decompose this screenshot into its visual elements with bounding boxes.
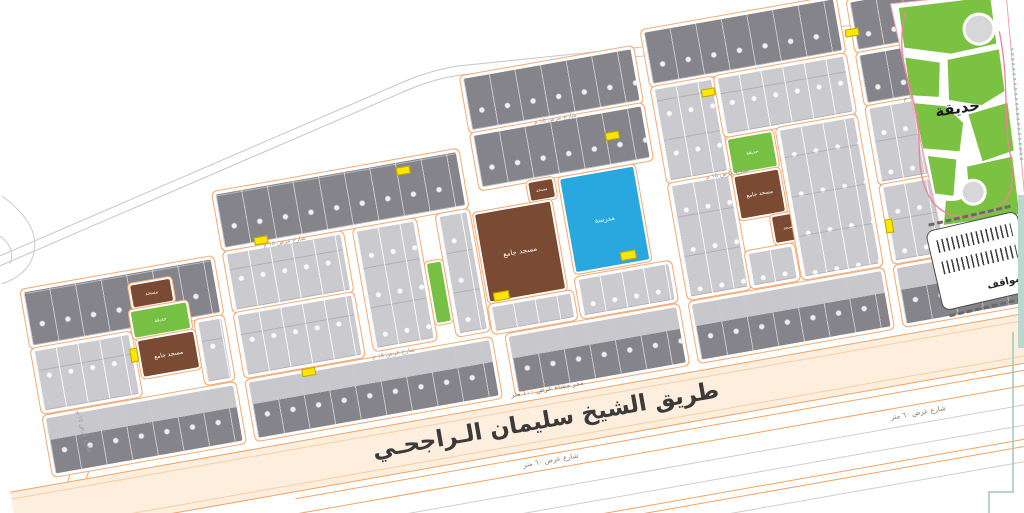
mosque-label: مسجد جامع	[502, 245, 537, 259]
garden-label: حديقة	[746, 149, 759, 157]
mosque-small-label: مسجد	[145, 289, 159, 297]
garden-label: حديقة	[154, 316, 167, 324]
garden-plot: حديقة	[728, 132, 777, 173]
plot-block	[654, 80, 727, 181]
mosque-label: مسجد جامع	[153, 348, 183, 360]
park-plaza-circle	[963, 13, 996, 46]
school-label: مدرسة	[594, 214, 616, 225]
mosque-plot: مسجد جامع	[138, 332, 199, 377]
plot-block	[748, 246, 797, 285]
parking-label: مواقف	[986, 273, 1022, 291]
utility-marker	[493, 290, 510, 302]
park: حديقة	[876, 0, 1024, 239]
plot-block	[197, 318, 231, 381]
park-plaza-circle	[960, 179, 986, 205]
mosque-plot: مسجد جامع	[734, 170, 785, 219]
grand-mosque-plot: مسجد جامع	[475, 202, 565, 302]
plot-block	[779, 118, 880, 277]
plot-block	[356, 222, 434, 348]
plot-block	[216, 152, 466, 248]
mosque-label: مسجد جامع	[746, 189, 774, 200]
mosque-plot-small: مسجد	[528, 179, 555, 201]
plot-block	[578, 264, 675, 315]
site-plan-map: مسجد حديقة مسجد جامع مسجد مسجد جامع مدرس…	[0, 0, 1024, 513]
mosque-small-label: مسجد	[783, 224, 795, 231]
mosque-small-label: مسجد	[535, 186, 547, 193]
plot-block	[34, 335, 139, 411]
utility-marker	[129, 348, 139, 363]
plot-block	[671, 176, 748, 296]
plot-block	[237, 296, 362, 375]
